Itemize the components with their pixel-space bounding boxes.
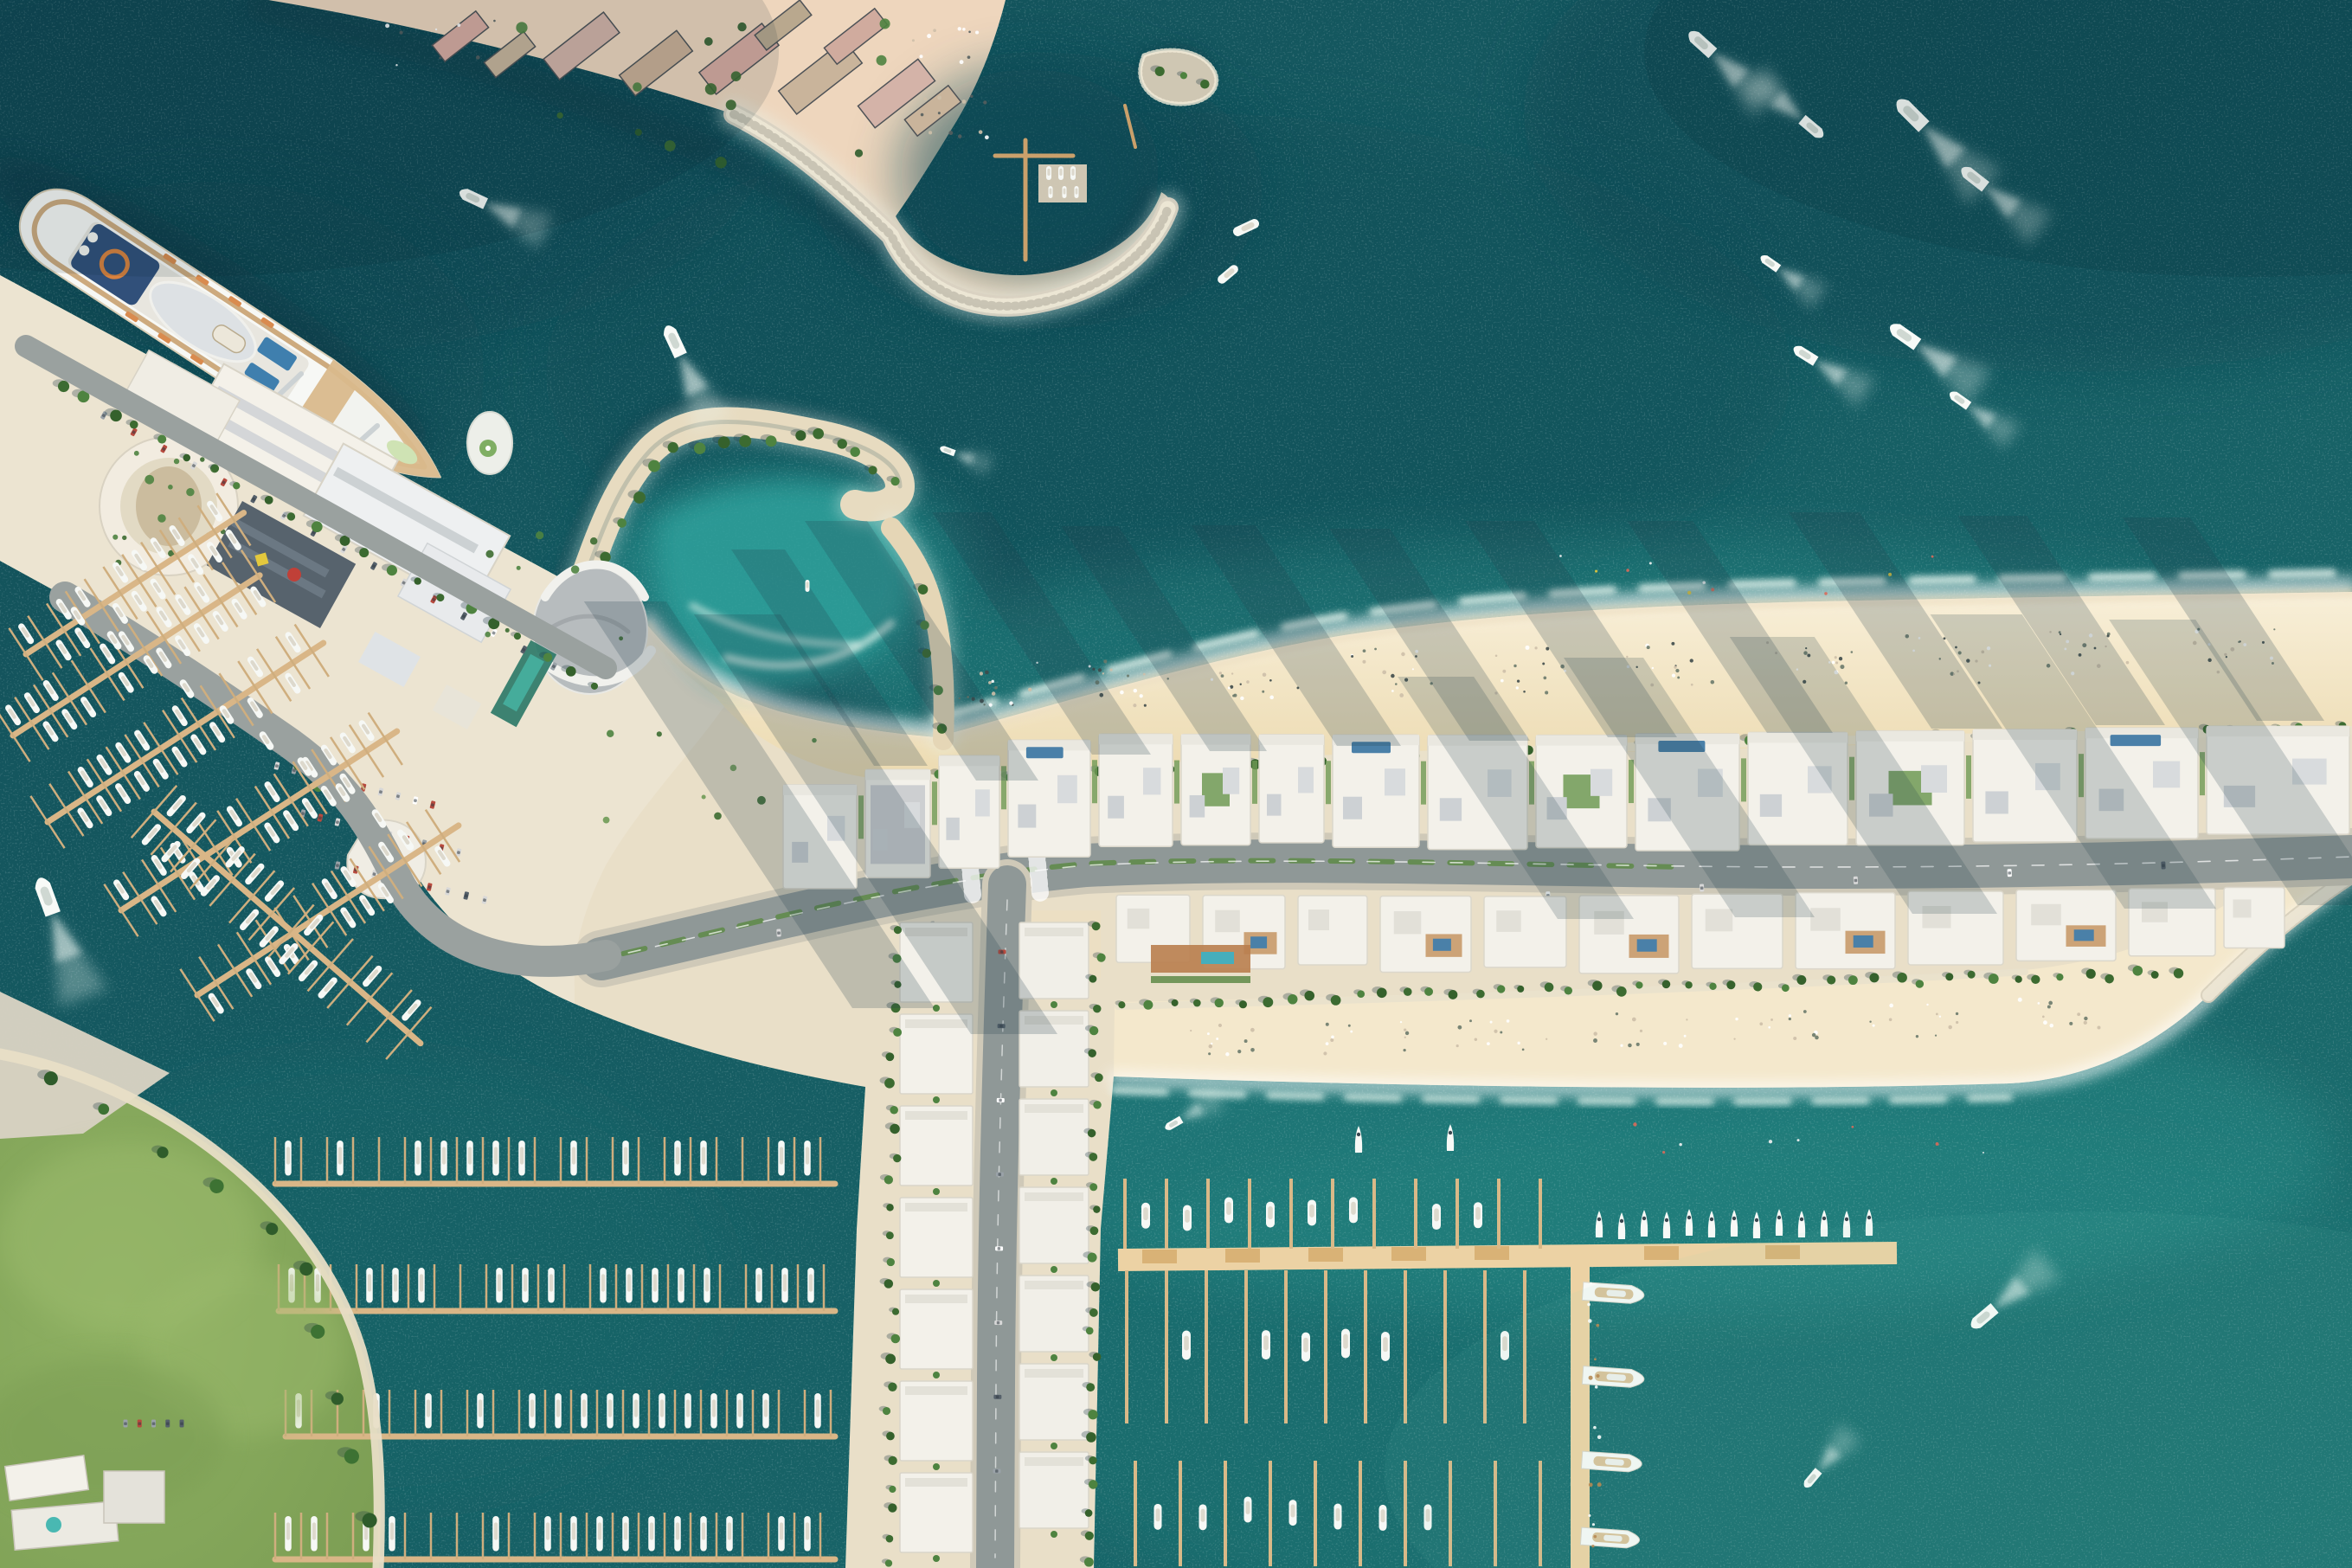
aerial-photo [0,0,2352,1568]
scene-layers [0,0,2352,1568]
aerial-render [0,0,2352,1568]
